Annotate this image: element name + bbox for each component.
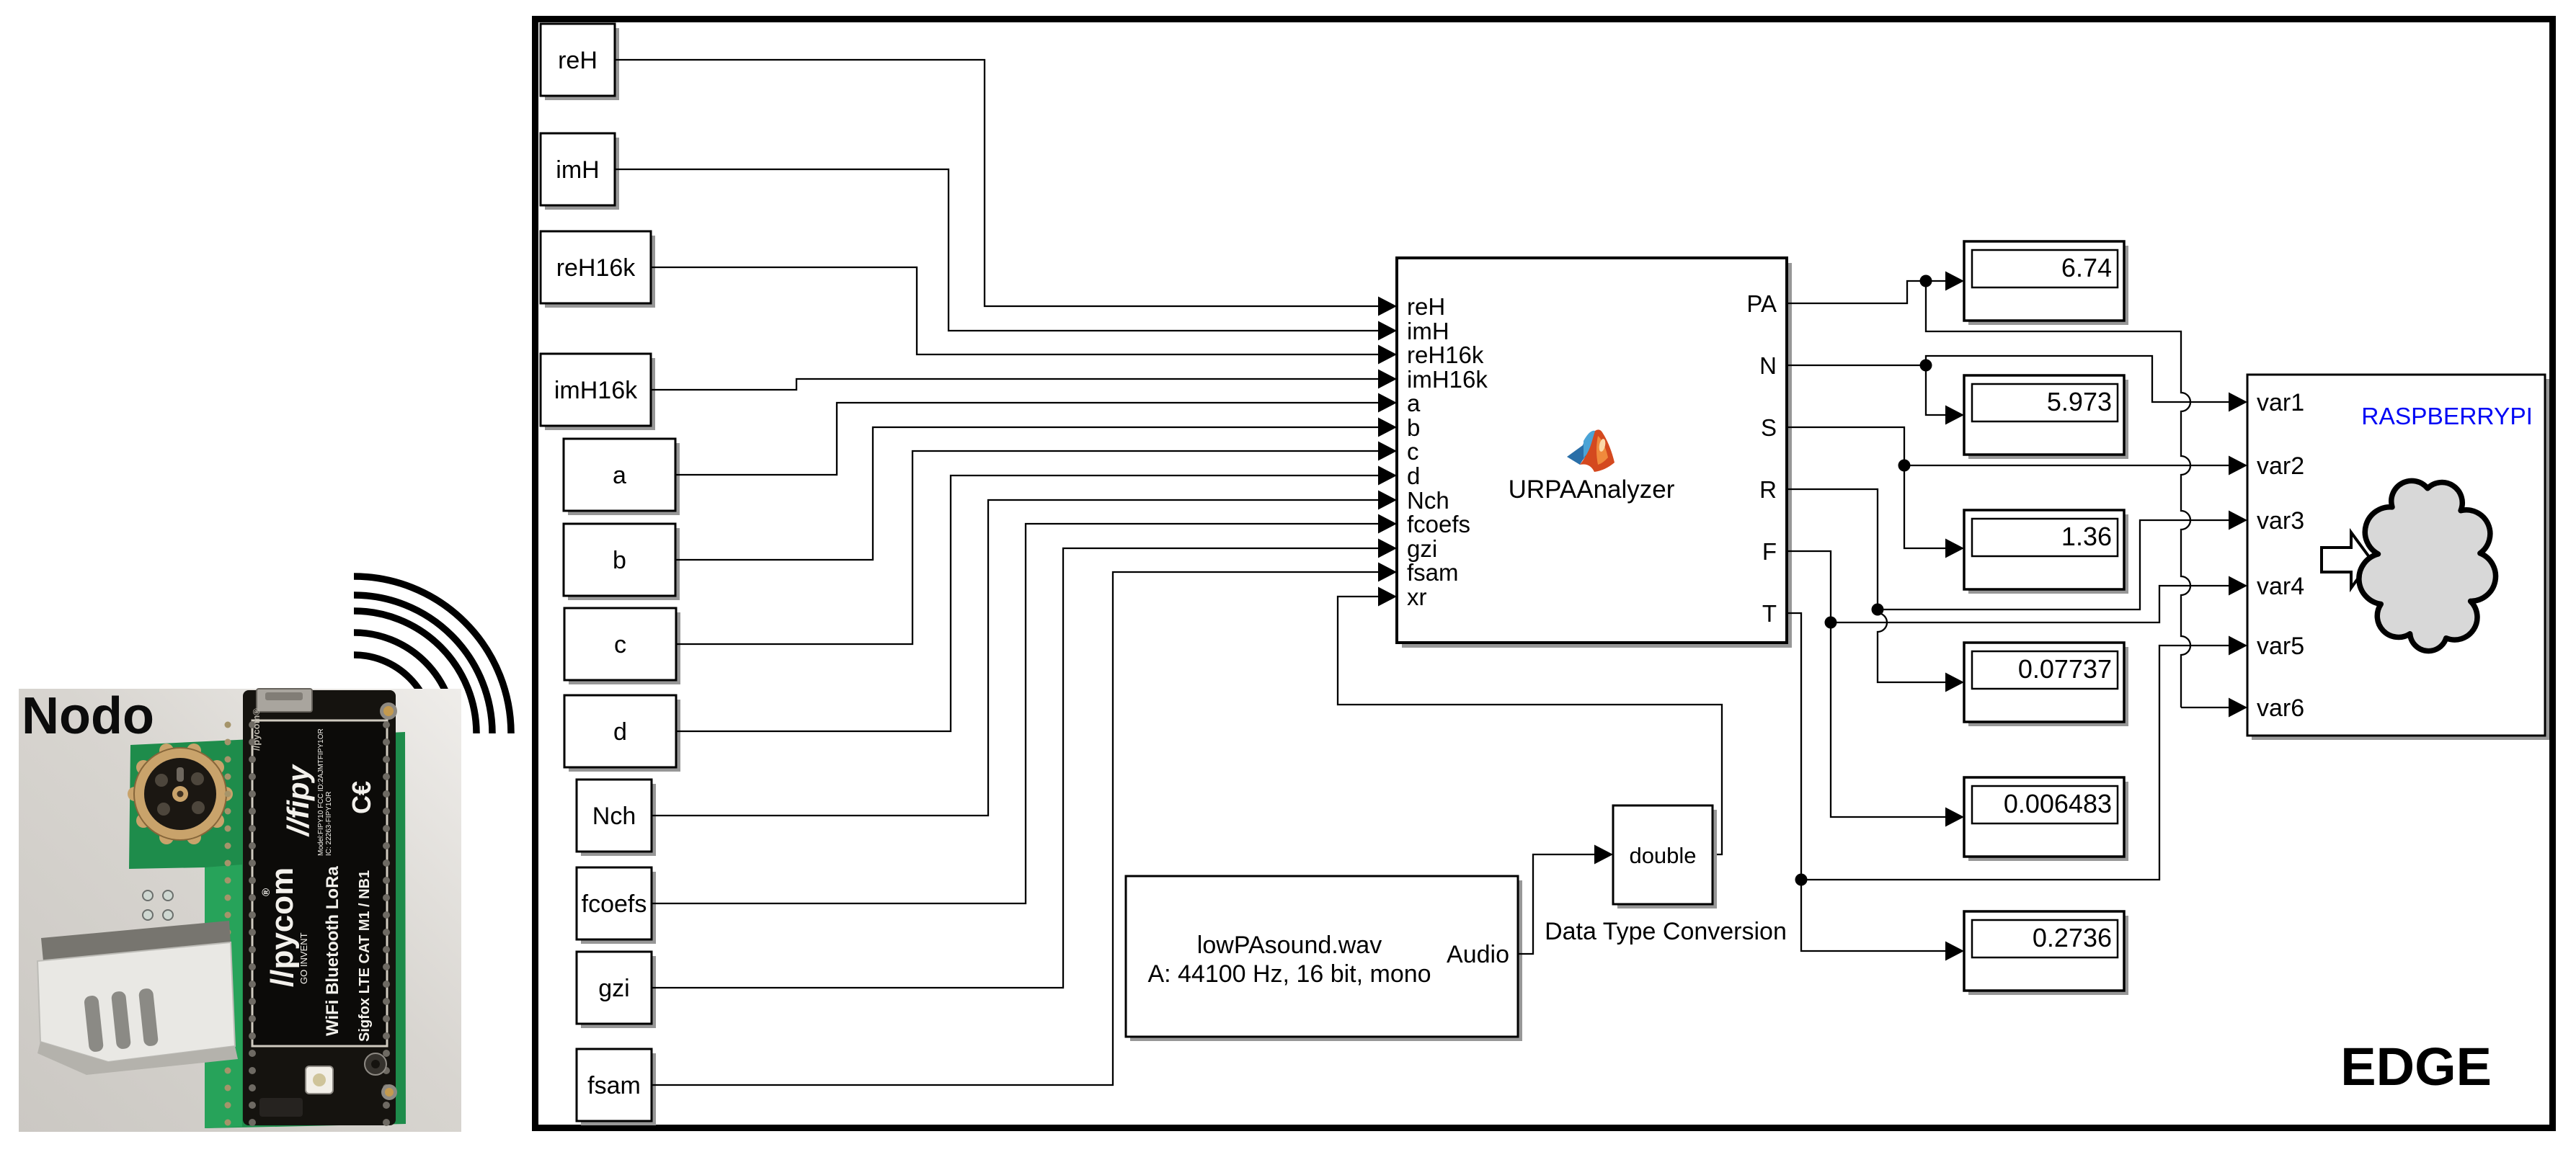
svg-text:F: F — [1762, 538, 1777, 565]
svg-text:N: N — [1759, 352, 1777, 379]
svg-text:var2: var2 — [2257, 452, 2304, 480]
svg-text:d: d — [613, 718, 627, 746]
svg-text:b: b — [613, 547, 626, 574]
svg-text:reH: reH — [558, 47, 598, 74]
svg-text:Nch: Nch — [592, 803, 636, 830]
svg-text:var3: var3 — [2257, 507, 2304, 535]
svg-text:RASPBERRYPI: RASPBERRYPI — [2361, 403, 2533, 430]
svg-text:gzi: gzi — [598, 975, 629, 1002]
svg-text:C€: C€ — [347, 781, 376, 814]
svg-text://pycom®: //pycom® — [251, 708, 262, 751]
svg-text:0.2736: 0.2736 — [2033, 923, 2112, 952]
svg-text:A: 44100 Hz, 16 bit, mono: A: 44100 Hz, 16 bit, mono — [1147, 960, 1431, 988]
svg-text:c: c — [1407, 438, 1419, 465]
svg-text:Model:FIPY10 FCC ID:2AJMTFIPY: Model:FIPY10 FCC ID:2AJMTFIPY1OR — [317, 728, 325, 856]
svg-text:var6: var6 — [2257, 695, 2304, 722]
svg-text:reH16k: reH16k — [556, 254, 636, 282]
svg-text:imH16k: imH16k — [1407, 366, 1488, 393]
svg-text:var1: var1 — [2257, 389, 2304, 416]
svg-text:S: S — [1761, 414, 1777, 441]
svg-text:reH16k: reH16k — [1407, 341, 1484, 368]
svg-text:c: c — [614, 631, 626, 658]
svg-text:T: T — [1762, 600, 1777, 627]
svg-text:Audio: Audio — [1447, 941, 1509, 968]
svg-text:1.36: 1.36 — [2061, 522, 2112, 551]
svg-text:var4: var4 — [2257, 573, 2304, 600]
svg-text:Data Type Conversion: Data Type Conversion — [1545, 918, 1787, 945]
svg-text:imH: imH — [556, 156, 599, 184]
svg-text:reH: reH — [1407, 293, 1445, 320]
svg-text:fcoefs: fcoefs — [1407, 511, 1470, 537]
svg-text:PA: PA — [1746, 290, 1777, 317]
svg-text:fsam: fsam — [587, 1072, 641, 1099]
svg-text:lowPAsound.wav: lowPAsound.wav — [1197, 932, 1382, 959]
svg-text:Sigfox LTE CAT M1 / NB1: Sigfox LTE CAT M1 / NB1 — [357, 870, 373, 1042]
svg-text:EDGE: EDGE — [2340, 1037, 2492, 1097]
svg-text:xr: xr — [1407, 584, 1427, 610]
svg-text:double: double — [1629, 843, 1696, 868]
svg-text://pycom: //pycom — [265, 867, 300, 987]
svg-text:gzi: gzi — [1407, 535, 1437, 562]
svg-text:d: d — [1407, 463, 1420, 489]
svg-text:imH: imH — [1407, 318, 1449, 344]
svg-text:GO INVENT: GO INVENT — [298, 932, 309, 984]
svg-text:Nch: Nch — [1407, 487, 1449, 514]
svg-text:R: R — [1759, 476, 1777, 503]
svg-text:6.74: 6.74 — [2061, 253, 2112, 282]
svg-text:a: a — [613, 462, 626, 489]
svg-text:Nodo: Nodo — [22, 687, 154, 745]
svg-text:®: ® — [260, 888, 272, 896]
svg-text:a: a — [1407, 390, 1421, 416]
svg-text://fipy: //fipy — [281, 763, 315, 837]
svg-text:IC: 22263-FIPY1OR: IC: 22263-FIPY1OR — [325, 792, 333, 856]
svg-text:fsam: fsam — [1407, 559, 1459, 586]
svg-text:WiFi Bluetooth LoRa: WiFi Bluetooth LoRa — [323, 866, 342, 1036]
svg-text:imH16k: imH16k — [554, 377, 638, 404]
svg-text:0.07737: 0.07737 — [2018, 654, 2112, 684]
svg-text:0.006483: 0.006483 — [2004, 789, 2112, 818]
svg-text:b: b — [1407, 414, 1420, 441]
svg-text:var5: var5 — [2257, 633, 2304, 660]
svg-text:5.973: 5.973 — [2047, 387, 2112, 416]
svg-text:URPAAnalyzer: URPAAnalyzer — [1509, 475, 1675, 504]
svg-text:fcoefs: fcoefs — [582, 890, 647, 918]
